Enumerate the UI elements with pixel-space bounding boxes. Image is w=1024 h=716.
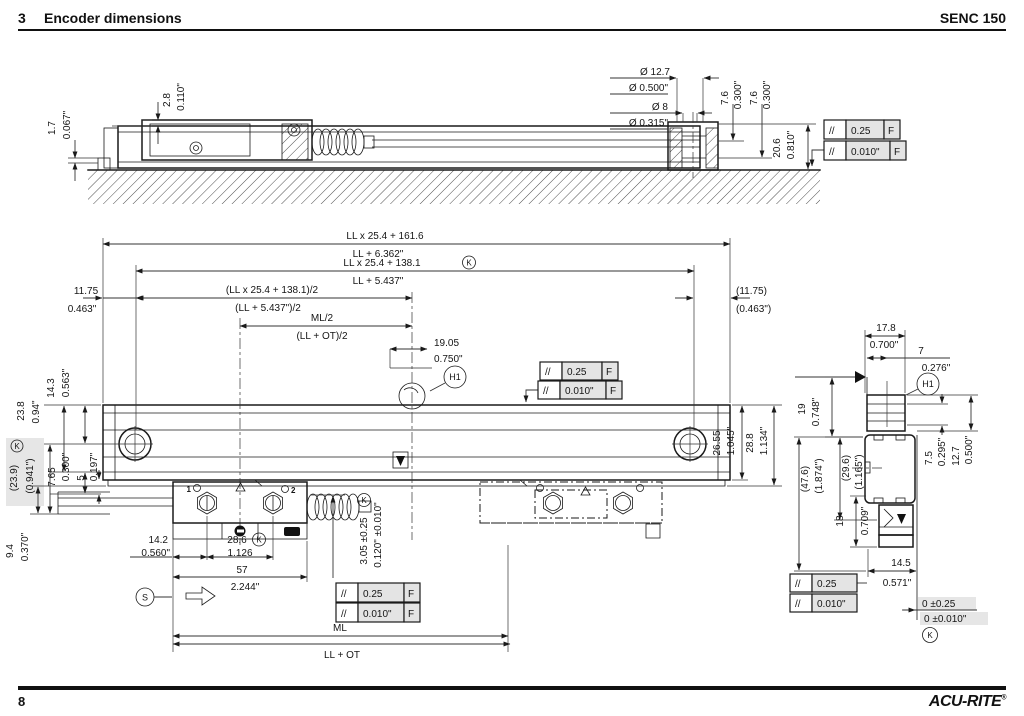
dim-dia2-mm: Ø 8: [652, 102, 669, 113]
side-dim-heights: 7.6 0.300" 7.6 0.300" 20.6 0.810": [718, 80, 816, 169]
dim-ml: ML: [333, 623, 347, 634]
datum-face-arrow: [855, 371, 866, 383]
dim-28-8-mm: 28.8: [745, 433, 756, 453]
front-dims-bottom: 14.2 0.560" 28.6 K 1.126 57 2.244" K 3.0…: [130, 494, 510, 662]
reading-head-alternate-dashed: [480, 482, 662, 538]
brand-mark: ®: [1001, 695, 1006, 702]
brand-logo: ACU-RITE®: [929, 693, 1006, 711]
dim-gap2-mm: 1.7: [47, 121, 58, 135]
dim-9-4-in: 0.370": [20, 532, 31, 561]
dim-3-05-in: 0.120" ±0.010": [373, 502, 384, 568]
fcf-bottom-datum2: F: [408, 609, 414, 620]
dim-14-2-in: 0.560": [141, 548, 170, 559]
fcf-bottom: // 0.25 F // 0.010" F: [336, 583, 420, 622]
mounting-block-section: [668, 112, 718, 178]
h1-label: H1: [449, 372, 461, 382]
fcf-front-sym1: //: [545, 367, 551, 378]
dim-28-6-mm: 28.6: [227, 535, 247, 546]
dim-off1-in: 0.300": [733, 80, 744, 109]
dim-dia1-mm: Ø 12.7: [640, 67, 670, 78]
dim-14-5-in: 0.571": [883, 578, 912, 589]
dim-17-8-mm: 17.8: [876, 323, 896, 334]
dim-gap2-in: 0.067": [62, 110, 73, 139]
dim-26-55-mm: 26.55: [712, 430, 723, 455]
dim-28-6-k: K: [256, 536, 262, 545]
fcf-bottom-tol-in: 0.010": [363, 609, 392, 620]
dim-half-ml: ML/2: [311, 313, 334, 324]
dim-mount-mm: LL x 25.4 + 138.1: [343, 258, 421, 269]
dim-dia2-in: Ø 0.315": [629, 118, 669, 129]
dim-7-65-in: 0.300": [61, 452, 72, 481]
h1-section-label: H1: [922, 379, 934, 389]
brand-name: ACU-RITE: [929, 693, 1001, 710]
cable-strain-relief-side: [312, 129, 374, 155]
dim-h-in: 0.810": [786, 130, 797, 159]
dim-26-55-in: 1.045": [726, 426, 737, 455]
dim-zero-k: K: [927, 631, 933, 640]
dim-gap1-in: 0.110": [176, 83, 187, 111]
dim-23-8-in: 0.94": [31, 400, 42, 423]
dim-18-mm: 18: [835, 515, 846, 527]
dim-29-6-in: (1.165"): [854, 454, 865, 489]
side-view: 2.8 0.110" 1.7 0.067": [47, 67, 906, 204]
page-number: 8: [18, 694, 25, 709]
side-dim-diameters: Ø 12.7 Ø 0.500" Ø 8 Ø 0.315": [610, 67, 719, 129]
dim-14-5-mm: 14.5: [891, 558, 911, 569]
fcf-front-sym2: //: [543, 386, 549, 397]
fcf-bottom-sym1: //: [341, 589, 347, 600]
h1-callout: H1: [430, 366, 466, 391]
fcf-front-tol-mm: 0.25: [567, 367, 587, 378]
dim-end-ref-mm: (11.75): [736, 286, 767, 297]
dim-29-6-mm: (29.6): [841, 455, 852, 481]
mounting-surface-hatch: [88, 170, 820, 204]
s-label: S: [142, 593, 148, 603]
fcf-side-sym2: //: [829, 147, 835, 158]
fcf-section-sym1: //: [795, 579, 801, 590]
dim-zero-mm: 0 ±0.25: [922, 599, 956, 610]
dim-47-6-mm: (47.6): [800, 466, 811, 492]
section-view: 17.8 0.700" 7 0.276" H1 7.5 0.295" 1: [790, 323, 988, 643]
dim-refmark-mm: 19.05: [434, 338, 459, 349]
fcf-side-datum2: F: [894, 147, 900, 158]
dim-23-9-in: (0.941"): [25, 458, 36, 493]
dim-5-mm: 5: [76, 475, 87, 481]
dim-12-7-mm: 12.7: [951, 446, 962, 466]
front-dims-top: LL x 25.4 + 161.6 LL + 6.362" LL x 25.4 …: [68, 231, 772, 430]
dim-7-mm: 7: [918, 346, 924, 357]
dim-dia1-in: Ø 0.500": [629, 83, 669, 94]
fcf-section-tol-mm: 0.25: [817, 579, 837, 590]
dim-3-05-k: K: [361, 496, 367, 505]
hex-bolt-2: [264, 492, 283, 514]
dim-end-ref-in: (0.463"): [736, 304, 771, 315]
dim-end-in: 0.463": [68, 304, 97, 315]
dim-7-5-in: 0.295": [937, 437, 948, 466]
fcf-side-sym1: //: [829, 126, 835, 137]
dim-23-9-mm: (23.9): [9, 465, 20, 491]
fcf-section-sym2: //: [795, 599, 801, 610]
dim-57-mm: 57: [236, 565, 248, 576]
fcf-bottom-sym2: //: [341, 609, 347, 620]
dim-19-mm: 19: [797, 403, 808, 415]
footer-rule: [18, 686, 1006, 690]
bolt2-label: 2: [291, 486, 296, 495]
section-clamp-block: [867, 381, 905, 431]
dim-off1-mm: 7.6: [720, 91, 731, 105]
dim-end-mm: 11.75: [74, 286, 99, 297]
dim-off2-in: 0.300": [762, 80, 773, 109]
dim-h-mm: 20.6: [772, 138, 783, 158]
dim-12-7-in: 0.500": [964, 435, 975, 464]
dim-off2-mm: 7.6: [749, 91, 760, 105]
dim-23-8-mm: 23.8: [16, 401, 27, 421]
dim-mount-k: K: [466, 259, 472, 268]
dim-overall-mm: LL x 25.4 + 161.6: [346, 231, 424, 242]
reading-head-front: 1 2: [173, 482, 307, 539]
dim-28-6-in: 1.126: [227, 548, 252, 559]
front-dims-left: 14.3 0.563" 23.8 0.94" K (23.9) (0.941")…: [5, 368, 117, 561]
dim-refmark-in: 0.750": [434, 354, 463, 365]
dim-28-8-in: 1.134": [759, 426, 770, 455]
dim-9-4-mm: 9.4: [5, 544, 16, 558]
dim-14-3-in: 0.563": [61, 368, 72, 397]
fcf-side-tol-in: 0.010": [851, 147, 880, 158]
dim-ll-ot: LL + OT: [324, 650, 360, 661]
dim-18-in: 0.709": [860, 506, 871, 535]
fcf-side-tol-mm: 0.25: [851, 126, 871, 137]
fcf-side-datum1: F: [888, 126, 894, 137]
fcf-bottom-datum1: F: [408, 589, 414, 600]
dim-7-in: 0.276": [922, 363, 951, 374]
dim-57-in: 2.244": [231, 582, 260, 593]
fcf-front: // 0.25 F // 0.010" F: [526, 362, 622, 402]
dim-14-2-mm: 14.2: [149, 535, 169, 546]
direction-arrow: [186, 587, 215, 605]
manual-page: 3 Encoder dimensions SENC 150: [0, 0, 1024, 716]
dim-gap1-mm: 2.8: [162, 93, 173, 107]
connector: [284, 527, 300, 536]
fcf-section-tol-in: 0.010": [817, 599, 846, 610]
fcf-bottom-tol-mm: 0.25: [363, 589, 383, 600]
fcf-section: // 0.25 // 0.010": [790, 574, 867, 612]
fcf-front-tol-in: 0.010": [565, 386, 594, 397]
dim-mount-in: LL + 5.437": [353, 276, 404, 287]
dim-19-in: 0.748": [811, 397, 822, 426]
front-dims-right: 26.55 1.045" 28.8 1.134": [712, 405, 782, 486]
hex-bolt-1: [198, 492, 217, 514]
dim-5-in: 0.197": [89, 452, 100, 481]
section-reading-head: [879, 505, 913, 547]
machine-rail-left: [58, 492, 173, 514]
front-view: H1: [5, 231, 782, 661]
fcf-front-datum1: F: [606, 367, 612, 378]
dim-7-65-mm: 7.65: [47, 467, 58, 487]
scale-index-marker: [393, 452, 408, 468]
technical-drawing: 2.8 0.110" 1.7 0.067": [0, 0, 1024, 716]
dim-7-5-mm: 7.5: [924, 451, 935, 465]
dim-17-8-in: 0.700": [870, 340, 899, 351]
dim-47-6-in: (1.874"): [814, 458, 825, 493]
fcf-front-datum2: F: [610, 386, 616, 397]
dim-23-9-k: K: [14, 442, 20, 451]
fcf-side: // 0.25 F // 0.010" F: [812, 120, 906, 166]
dim-zero-in: 0 ±0.010": [924, 614, 967, 625]
dim-half-mount-in: (LL + 5.437")/2: [235, 303, 301, 314]
dim-14-3-mm: 14.3: [46, 378, 57, 398]
dim-half-mount-mm: (LL x 25.4 + 138.1)/2: [226, 285, 319, 296]
dim-3-05-mm: 3.05 ±0.25: [359, 517, 370, 565]
bolt1-label: 1: [187, 485, 192, 494]
dim-half-ll-ot: (LL + OT)/2: [296, 331, 347, 342]
